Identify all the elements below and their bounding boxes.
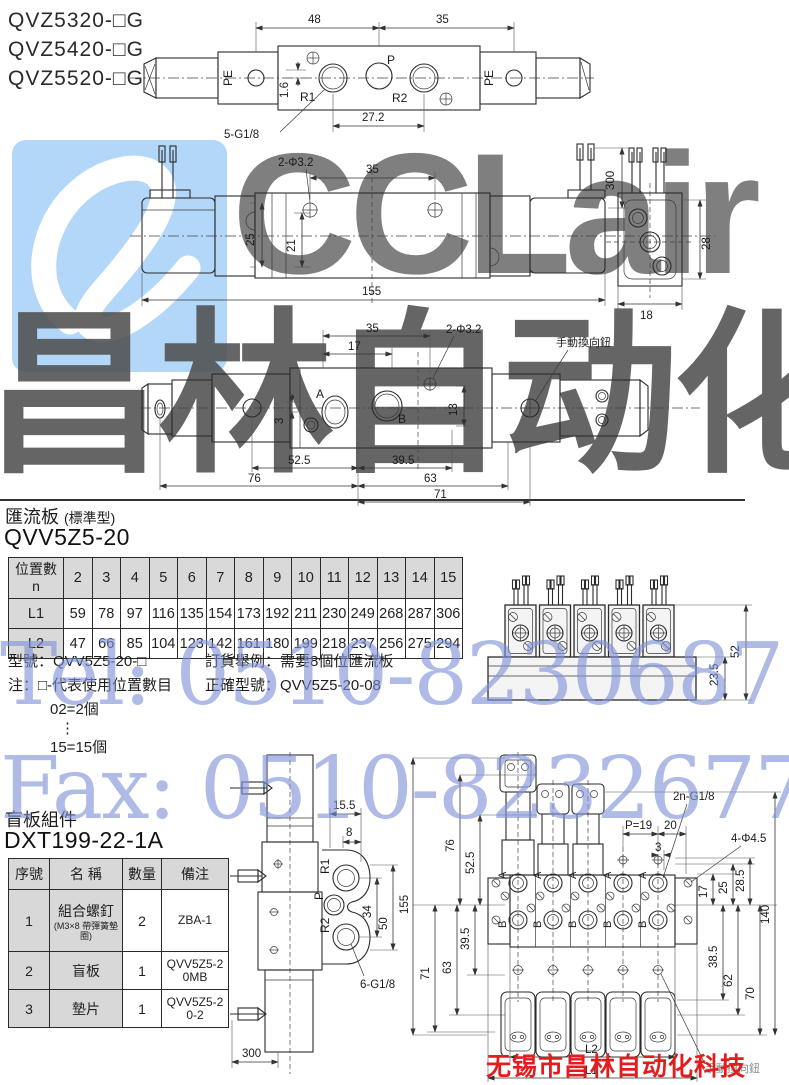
station-b-label: B: [497, 921, 509, 928]
dim-25-top: 25: [718, 881, 730, 894]
station-a-label: A: [497, 871, 509, 879]
part-name: 墊片: [50, 990, 123, 1028]
dim-p19: P=19: [625, 820, 652, 832]
manifold-front-drawing: 23.5 52: [478, 550, 789, 755]
model-qvz5320: QVZ5320-□G: [8, 6, 144, 35]
order-example-line: 訂貨舉例：需要8個位匯流板: [205, 650, 393, 674]
dim-62: 62: [723, 974, 735, 987]
note-ellipsis: ⋮: [8, 722, 172, 736]
order-notes-right: 訂貨舉例：需要8個位匯流板 正確型號：QVV5Z5-20-08: [205, 650, 393, 698]
order-notes-left: 型號：QVV5Z5-20-□ 注：□-代表使用位置數目 02=2個 ⋮ 15=1…: [8, 650, 172, 760]
l1-value: 306: [434, 599, 463, 629]
dim-71: 71: [434, 489, 447, 501]
col-n: 9: [263, 558, 292, 599]
station-a-label: A: [602, 871, 614, 879]
l1-value: 249: [349, 599, 378, 629]
blank-plate-parts-table: 序號 名 稱 數量 備注 1 組合螺釘 (M3×8 帶彈簧墊圈) 2 ZBA-1…: [8, 858, 229, 1028]
dim-300-side: 300: [242, 1048, 261, 1060]
dim-13: 13: [448, 403, 460, 416]
dim-39-5: 39.5: [392, 455, 414, 467]
col-n: 6: [178, 558, 207, 599]
plan-view-drawing: 3 A B 13 35 17 2-Φ3.2 手動換向鈕 52.5 39.5: [140, 322, 715, 507]
manual-override-note: 手動換向鈕: [705, 1061, 760, 1075]
station-a-label: A: [637, 871, 649, 879]
station-b-label: B: [567, 921, 579, 928]
dim-23-5: 23.5: [709, 664, 721, 686]
station-a-label: A: [532, 871, 544, 879]
parts-row: 1 組合螺釘 (M3×8 帶彈簧墊圈) 2 ZBA-1: [9, 890, 229, 952]
dim-holes-plan: 2-Φ3.2: [446, 324, 481, 336]
parts-header-row: 序號 名 稱 數量 備注: [9, 859, 229, 890]
col-n: 3: [92, 558, 121, 599]
dim-18: 18: [640, 310, 653, 322]
port-a-label: A: [316, 387, 324, 401]
l1-value: 268: [377, 599, 406, 629]
model-qvz5520: QVZ5520-□G: [8, 64, 144, 93]
part-no: 1: [9, 890, 50, 952]
corner-bottom: n: [32, 578, 40, 594]
station-b-label: B: [532, 921, 544, 928]
dim-300-front: 300: [605, 171, 617, 190]
table-row-l1: L1 59 78 97 116 135 154 173 192 211 230 …: [9, 599, 463, 629]
col-n: 5: [149, 558, 178, 599]
dim-35-front: 35: [366, 164, 379, 176]
dim-48: 48: [308, 14, 321, 26]
part-note: QVV5Z5-20-2: [162, 990, 229, 1028]
dim-63: 63: [424, 473, 437, 485]
dim-35-plan: 35: [366, 323, 379, 335]
vdim-63: 63: [442, 961, 454, 974]
header-name: 名 稱: [50, 859, 123, 890]
l1-value: 97: [121, 599, 150, 629]
valve-units: [505, 576, 674, 657]
vdim-155: 155: [399, 895, 411, 914]
manifold-dimension-table: 位置數 n 2 3 4 5 6 7 8 9 10 11 12 13 14 15 …: [8, 557, 463, 659]
port-b-label: B: [398, 412, 406, 426]
col-n: 10: [292, 558, 321, 599]
l2-value: 294: [434, 629, 463, 659]
part-name: 組合螺釘 (M3×8 帶彈簧墊圈): [50, 890, 123, 952]
col-n: 15: [434, 558, 463, 599]
part-qty: 1: [123, 952, 162, 990]
manifold-base: [488, 657, 696, 700]
parts-row: 3 墊片 1 QVV5Z5-20-2: [9, 990, 229, 1028]
note-model-line: 型號：QVV5Z5-20-□: [8, 650, 172, 674]
part-note: QVV5Z5-20MB: [162, 952, 229, 990]
part-name-sub: (M3×8 帶彈簧墊圈): [52, 921, 120, 941]
header-note: 備注: [162, 859, 229, 890]
vdim-39-5: 39.5: [460, 928, 472, 950]
blank-plate-model: DXT199-22-1A: [4, 827, 163, 854]
col-n: 12: [349, 558, 378, 599]
part-no: 2: [9, 952, 50, 990]
dim-17-plan: 17: [348, 341, 361, 353]
corner-cell: 位置數 n: [9, 558, 64, 599]
dim-4-holes: 4-Φ4.5: [731, 833, 766, 845]
l1-value: 154: [206, 599, 235, 629]
vdim-76: 76: [445, 839, 457, 852]
datasheet-page: CCLair 昌林自动化 Tel: 0510-82306871 Fax: 051…: [0, 0, 789, 1085]
dim-25: 25: [245, 233, 257, 246]
l1-value: 230: [320, 599, 349, 629]
port-r2-label: R2: [392, 91, 408, 105]
dim-15-5: 15.5: [333, 800, 355, 812]
vdim-71: 71: [420, 967, 432, 980]
dim-21: 21: [286, 239, 298, 252]
station-b-label: B: [637, 921, 649, 928]
dim-34: 34: [362, 905, 374, 918]
station-b-label: B: [602, 921, 614, 928]
l1-value: 173: [235, 599, 264, 629]
dim-1-6: 1.6: [279, 82, 291, 98]
port-r1-label: R1: [300, 90, 316, 104]
part-qty: 2: [123, 890, 162, 952]
dim-8: 8: [346, 827, 352, 839]
manifold-top-drawing: 155 76 52.5 71 63 39.5: [405, 752, 789, 1085]
l1-value: 211: [292, 599, 321, 629]
dim-28: 28: [701, 237, 713, 250]
top-view-drawing: PE R1 P R2 PE 48 35 1.6 27.2 5-G1/8: [128, 8, 598, 143]
dim-70: 70: [745, 987, 757, 1000]
order-model-line: 正確型號：QVV5Z5-20-08: [205, 674, 393, 698]
l1-value: 116: [149, 599, 178, 629]
part-note: ZBA-1: [162, 890, 229, 952]
part-no: 3: [9, 990, 50, 1028]
part-qty: 1: [123, 990, 162, 1028]
manual-override-label: 手動換向鈕: [556, 335, 611, 349]
header-qty: 數量: [123, 859, 162, 890]
port-r1-side-label: R1: [318, 858, 332, 874]
l1-value: 135: [178, 599, 207, 629]
port-p-label: P: [387, 53, 395, 67]
note-example-15: 15=15個: [8, 736, 172, 760]
dim-3-top: 3: [655, 842, 661, 854]
dim-155-front: 155: [362, 286, 381, 298]
col-n: 13: [377, 558, 406, 599]
col-n: 8: [235, 558, 264, 599]
thread-2n-g18: 2n-G1/8: [673, 791, 715, 803]
col-n: 2: [64, 558, 93, 599]
l1-value: 59: [64, 599, 93, 629]
dim-27-2: 27.2: [362, 112, 384, 124]
model-qvz5420: QVZ5420-□G: [8, 35, 144, 64]
dim-holes-front: 2-Φ3.2: [278, 157, 313, 169]
dim-20: 20: [664, 820, 677, 832]
l1-value: 78: [92, 599, 121, 629]
vdim-52-5: 52.5: [465, 852, 477, 874]
dim-50: 50: [378, 917, 390, 930]
dim-l1: L1: [585, 1065, 598, 1077]
row-label-l1: L1: [9, 599, 64, 629]
dim-76: 76: [248, 473, 261, 485]
front-view-drawing: 300 2-Φ3.2 35 25 21 155 28 18: [10, 138, 789, 326]
l1-value: 287: [406, 599, 435, 629]
thread-6-g18: 6-G1/8: [360, 979, 395, 991]
part-name: 盲板: [50, 952, 123, 990]
part-name-text: 組合螺釘: [58, 903, 114, 919]
station-a-label: A: [567, 871, 579, 879]
l2-value: 123: [178, 629, 207, 659]
dim-l2: L2: [585, 1044, 598, 1056]
col-n: 7: [206, 558, 235, 599]
corner-top: 位置數: [15, 561, 57, 577]
header-no: 序號: [9, 859, 50, 890]
note-example-2: 02=2個: [8, 698, 172, 722]
port-pe-left-label: PE: [221, 70, 235, 86]
table-header-row: 位置數 n 2 3 4 5 6 7 8 9 10 11 12 13 14 15: [9, 558, 463, 599]
dim-52-5: 52.5: [288, 455, 310, 467]
dim-3-plan: 3: [274, 418, 286, 424]
port-r2-side-label: R2: [318, 917, 332, 933]
dim-140: 140: [760, 905, 772, 924]
l1-value: 192: [263, 599, 292, 629]
station-ports: AB AB AB AB AB: [497, 871, 675, 929]
dim-35-top: 35: [436, 14, 449, 26]
dim-38-5: 38.5: [708, 946, 720, 968]
port-pe-right-label: PE: [482, 70, 496, 86]
col-n: 14: [406, 558, 435, 599]
l2-value: 275: [406, 629, 435, 659]
dim-28-5: 28.5: [735, 870, 747, 892]
dim-17-top: 17: [698, 885, 710, 898]
manifold-model: QVV5Z5-20: [4, 524, 130, 551]
note-note-line: 注：□-代表使用位置數目: [8, 674, 172, 698]
parts-row: 2 盲板 1 QVV5Z5-20MB: [9, 952, 229, 990]
col-n: 11: [320, 558, 349, 599]
port-p-side-label: P: [312, 892, 326, 900]
col-n: 4: [121, 558, 150, 599]
dim-52: 52: [730, 645, 742, 658]
model-list: QVZ5320-□G QVZ5420-□G QVZ5520-□G: [8, 6, 144, 93]
